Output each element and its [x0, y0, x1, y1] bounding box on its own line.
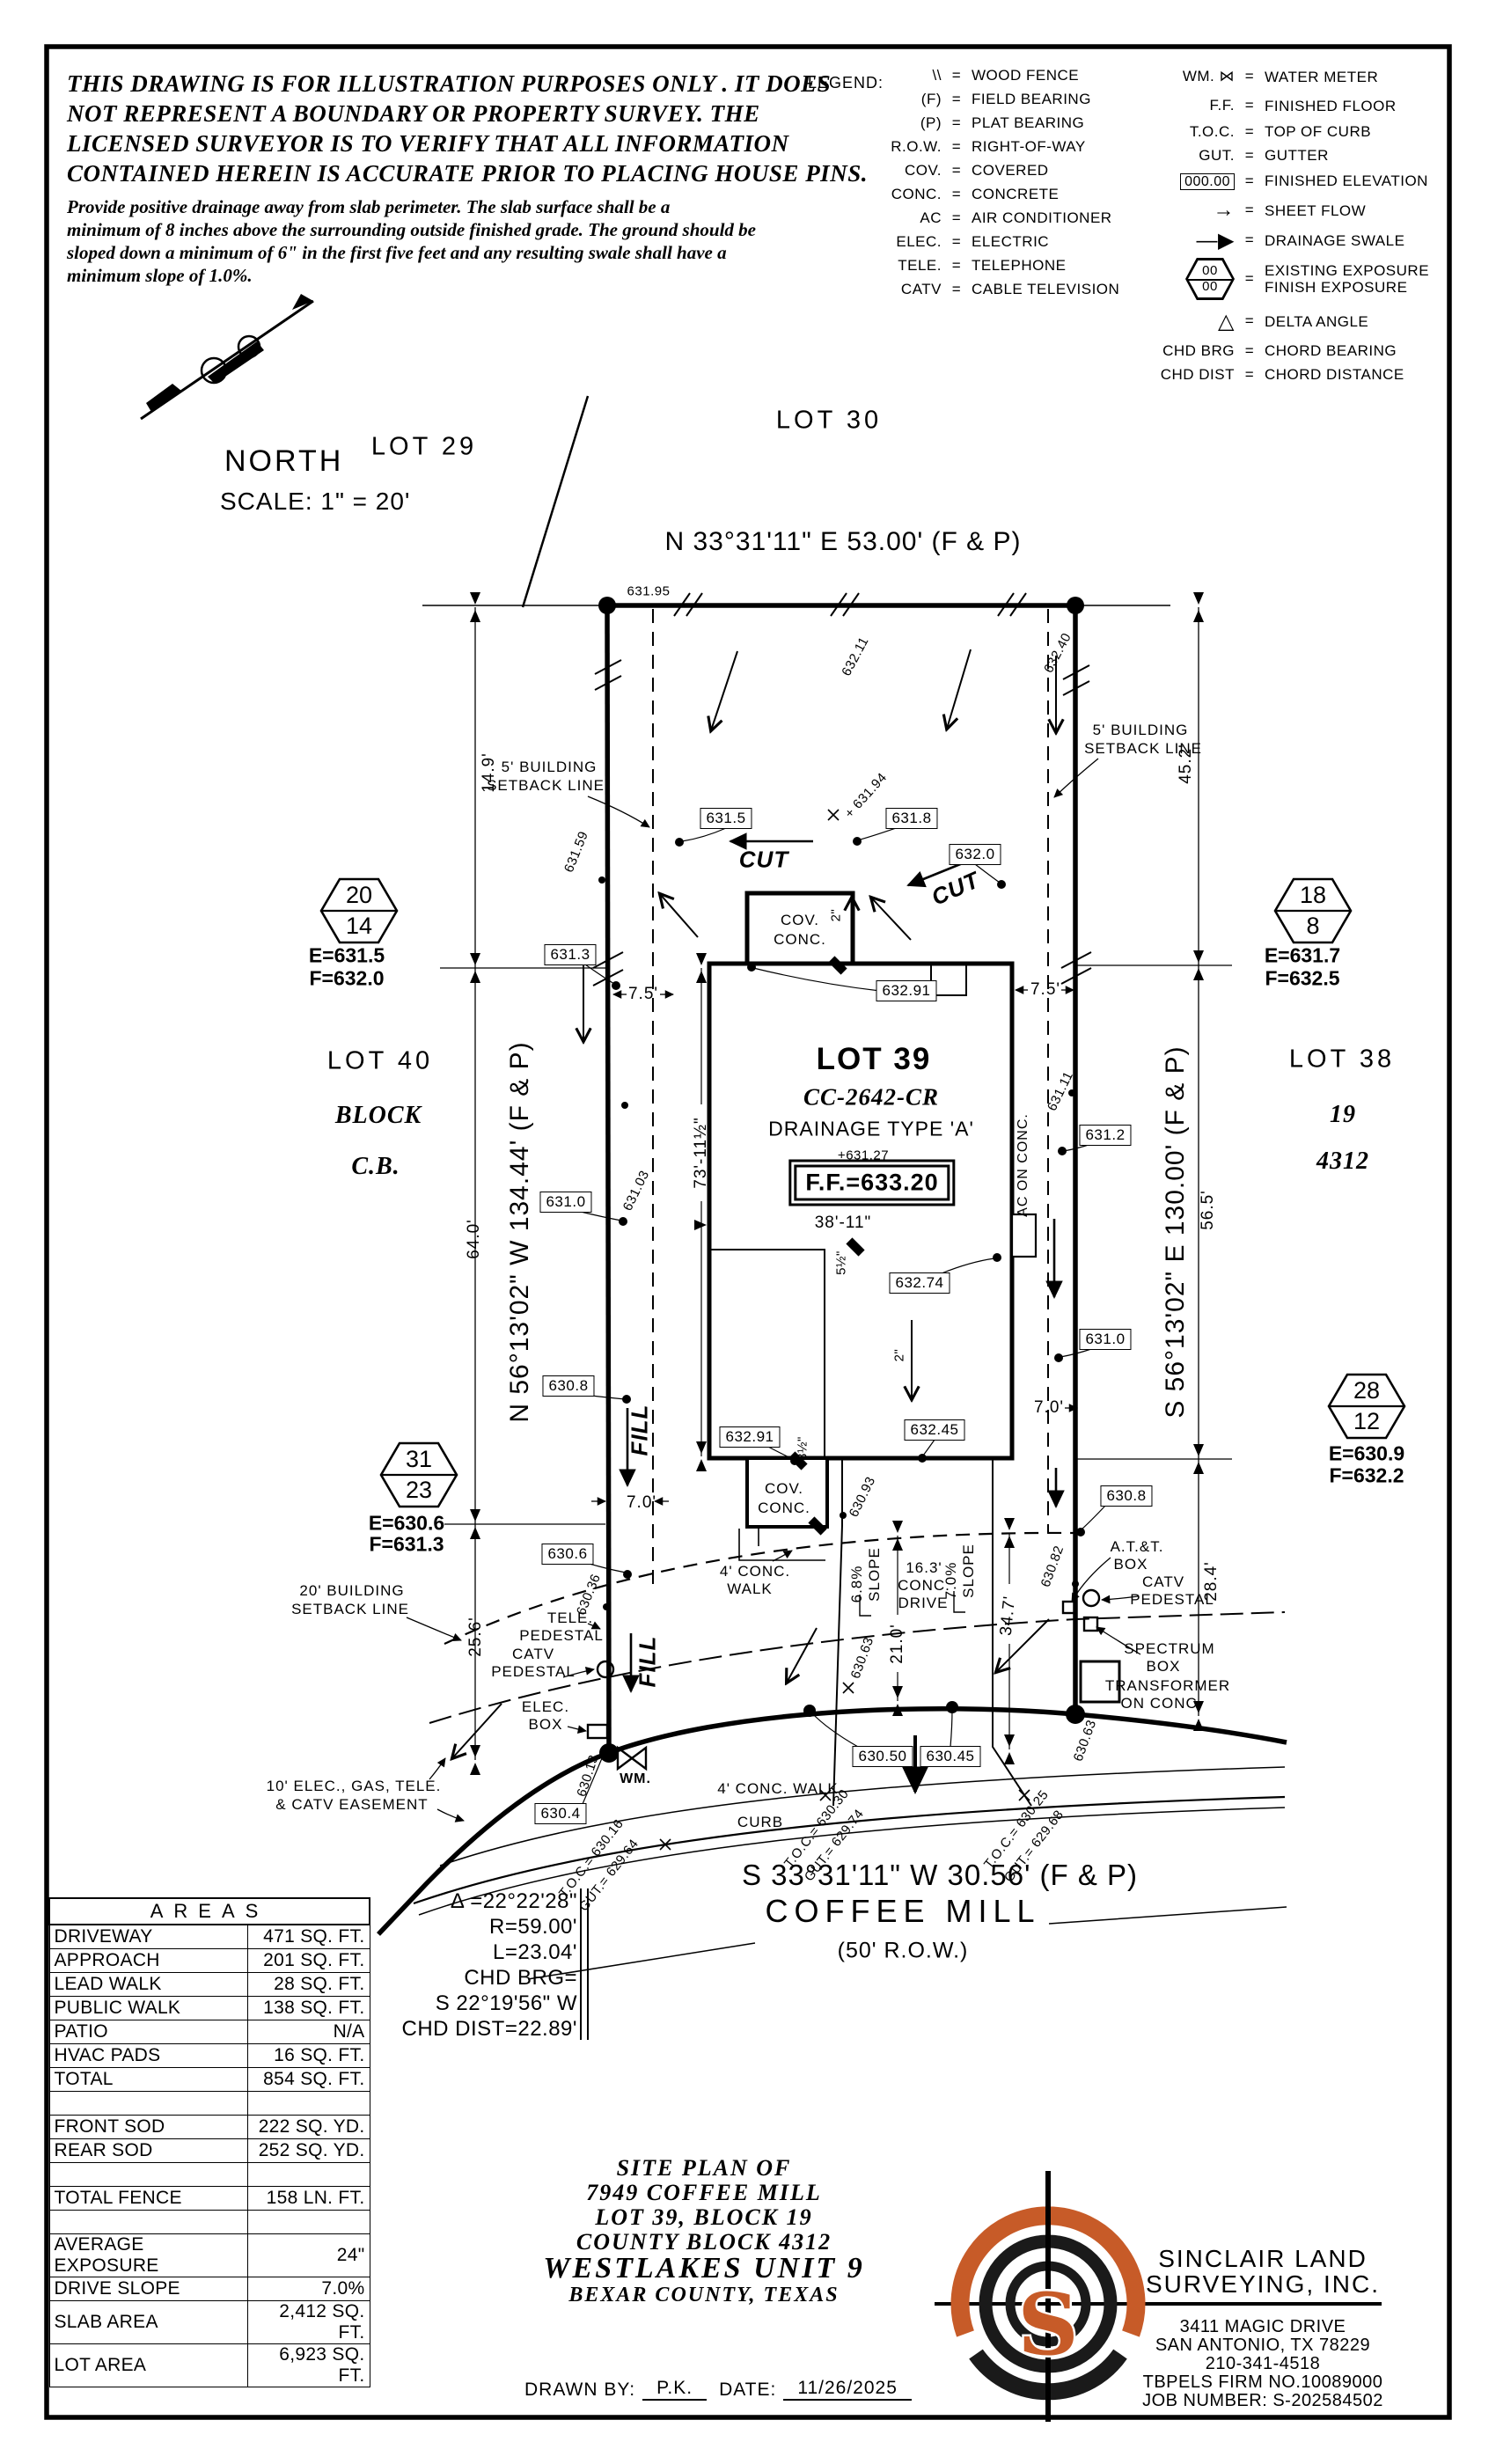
area-value: 158 LN. FT.	[247, 2187, 370, 2211]
legend-symbol: △	[1218, 310, 1235, 334]
plan-label: 19	[1330, 1101, 1356, 1129]
area-label	[49, 2163, 247, 2187]
area-label: LEAD WALK	[49, 1973, 247, 1997]
plan-label: F=632.0	[309, 967, 384, 991]
elevation-box: 630.8	[542, 1375, 594, 1397]
legend-label: DRAINAGE SWALE	[1265, 232, 1404, 249]
area-value: 252 SQ. YD.	[247, 2139, 370, 2163]
plan-label: E=631.5	[309, 944, 385, 968]
legend-label: TELEPHONE	[972, 257, 1066, 274]
plan-label: 7.0'	[627, 1493, 656, 1513]
water-meter-icon	[618, 1748, 646, 1769]
legend-item: △ △ = DELTA ANGLE	[1140, 304, 1474, 339]
area-value: 222 SQ. YD.	[247, 2116, 370, 2139]
area-value: N/A	[247, 2020, 370, 2044]
plan-label: 7.0%	[942, 1562, 960, 1600]
legend-symbol: COV.	[845, 162, 942, 180]
areas-table-row	[49, 2092, 370, 2116]
plan-label: LOT 29	[371, 433, 477, 462]
area-label: HVAC PADS	[49, 2044, 247, 2068]
curve-data-line: R=59.00'	[359, 1914, 577, 1940]
svg-text:18: 18	[1300, 882, 1326, 908]
plan-label: ON CONC.	[1121, 1695, 1203, 1712]
area-label: PATIO	[49, 2020, 247, 2044]
plan-label: FILL	[627, 1404, 654, 1456]
legend-label: RIGHT-OF-WAY	[972, 138, 1086, 155]
drainage-note-line: sloped down a minimum of 6" in the first…	[67, 241, 806, 264]
area-label: TOTAL FENCE	[49, 2187, 247, 2211]
plan-label: LOT 38	[1289, 1045, 1395, 1074]
area-value: 2,412 SQ. FT.	[247, 2301, 370, 2344]
plan-label: SETBACK LINE	[487, 777, 605, 795]
area-label: AVERAGE EXPOSURE	[49, 2234, 247, 2277]
legend-symbol: WM. ⋈	[1183, 68, 1235, 84]
plan-label: A.T.&T.	[1111, 1538, 1164, 1556]
plan-label: F=632.5	[1265, 967, 1339, 991]
plan-label: 2"	[829, 909, 844, 922]
plan-label: E=630.9	[1329, 1442, 1404, 1466]
area-label: DRIVE SLOPE	[49, 2277, 247, 2301]
legend-label: CHORD DISTANCE	[1265, 366, 1404, 383]
legend-item: AC = AIR CONDITIONER	[845, 206, 1135, 230]
disclaimer: THIS DRAWING IS FOR ILLUSTRATION PURPOSE…	[67, 69, 806, 287]
title-line: SITE PLAN OF	[493, 2156, 915, 2181]
plan-label: 64.0'	[465, 1219, 484, 1259]
plan-label: SLOPE	[960, 1544, 978, 1598]
plan-label: CATV	[1142, 1573, 1184, 1591]
north-arrow-icon	[141, 294, 313, 419]
plan-label: COV.	[765, 1480, 803, 1498]
plan-label: 56.5'	[1199, 1190, 1218, 1230]
plan-label: BLOCK	[335, 1102, 422, 1130]
legend-symbol: ELEC.	[845, 233, 942, 251]
legend-item: COV. = COVERED	[845, 158, 1135, 182]
plan-label: COV.	[781, 912, 819, 929]
area-label: APPROACH	[49, 1949, 247, 1973]
plan-label: 7.5'	[628, 985, 658, 1004]
plan-label: LOT 40	[327, 1047, 433, 1076]
legend-item: TELE. = TELEPHONE	[845, 253, 1135, 277]
plan-label: N 33°31'11" E 53.00' (F & P)	[664, 527, 1021, 557]
lot-boundary-left	[607, 605, 609, 1753]
plan-label: 4312	[1316, 1148, 1369, 1176]
exposure-hexagon: 20 14	[319, 876, 399, 945]
plan-label: 3½"	[796, 1436, 810, 1461]
legend-label: PLAT BEARING	[972, 114, 1084, 131]
survey-sheet: S THIS DRAWING IS FOR ILLUSTRATION PURPO…	[0, 0, 1496, 2464]
title-line: 7949 COFFEE MILL	[493, 2181, 915, 2205]
areas-table-row	[49, 2211, 370, 2234]
legend-symbol: —▶	[1197, 229, 1235, 253]
legend-symbol: (F)	[845, 91, 942, 108]
plan-label: 2"	[892, 1349, 907, 1362]
plan-label: SPECTRUM	[1124, 1640, 1214, 1658]
area-label	[49, 2211, 247, 2234]
areas-table-row: PATIO N/A	[49, 2020, 370, 2044]
area-value: 16 SQ. FT.	[247, 2044, 370, 2068]
legend-label: AIR CONDITIONER	[972, 209, 1112, 226]
legend-item: 00 0000 = EXISTING EXPOSUREFINISH EXPOSU…	[1140, 254, 1474, 304]
plan-label: DRIVE	[898, 1595, 949, 1612]
legend-item: ELEC. = ELECTRIC	[845, 230, 1135, 253]
legend-item: CHD DIST CHD DIST = CHORD DISTANCE	[1140, 363, 1474, 386]
drawn-by-label: DRAWN BY:	[524, 2380, 635, 2401]
plan-label: 5½"	[834, 1250, 849, 1275]
plan-label: E=630.6	[369, 1512, 444, 1536]
company-firm-no: TBPELS FIRM NO.10089000	[1126, 2373, 1399, 2392]
curve-data-line: Δ =22°22'28"	[359, 1888, 577, 1914]
logo-letter: S	[1017, 2275, 1078, 2374]
drawn-by-row: DRAWN BY: P.K. DATE: 11/26/2025	[524, 2378, 924, 2401]
elevation-box: 630.6	[541, 1544, 593, 1565]
company-name-line2: SURVEYING, INC.	[1126, 2271, 1399, 2297]
legend-item: WM. ⋈ WM. ⋈ = WATER METER	[1140, 62, 1474, 92]
date-value: 11/26/2025	[783, 2378, 912, 2401]
plan-label: CONC.	[774, 931, 826, 949]
legend-symbol: (P)	[845, 114, 942, 132]
plan-label: & CATV EASEMENT	[275, 1796, 428, 1814]
legend-symbol: →	[1214, 198, 1236, 222]
title-block: SITE PLAN OF7949 COFFEE MILLLOT 39, BLOC…	[493, 2156, 915, 2307]
legend-item: GUT. GUT. = GUTTER	[1140, 143, 1474, 167]
disclaimer-line: THIS DRAWING IS FOR ILLUSTRATION PURPOSE…	[67, 69, 806, 99]
plan-label: 20' BUILDING	[299, 1582, 404, 1600]
areas-table-row: REAR SOD 252 SQ. YD.	[49, 2139, 370, 2163]
legend-symbol: \\	[845, 67, 942, 84]
legend-label: FINISHED FLOOR	[1265, 98, 1397, 114]
legend-label: CABLE TELEVISION	[972, 281, 1119, 297]
area-label: PUBLIC WALK	[49, 1997, 247, 2020]
area-label: FRONT SOD	[49, 2116, 247, 2139]
plan-label: 16.3'	[906, 1559, 942, 1577]
areas-table-row: AVERAGE EXPOSURE 24"	[49, 2234, 370, 2277]
area-value: 6,923 SQ. FT.	[247, 2344, 370, 2387]
plan-label: BOX	[529, 1716, 563, 1734]
legend-label: FINISHED ELEVATION	[1265, 172, 1428, 189]
svg-text:31: 31	[406, 1446, 432, 1472]
plan-label: CUT	[739, 847, 788, 874]
svg-text:14: 14	[346, 913, 372, 939]
utility-symbols	[588, 1590, 1119, 1769]
plan-label: 5' BUILDING	[502, 759, 598, 776]
legend-symbol: CHD BRG	[1162, 342, 1235, 359]
legend-item: → → = SHEET FLOW	[1140, 194, 1474, 226]
areas-table-row: TOTAL FENCE 158 LN. FT.	[49, 2187, 370, 2211]
elec-box-icon	[588, 1725, 607, 1738]
legend-symbol: CHD DIST	[1161, 366, 1235, 383]
legend-label: EXISTING EXPOSUREFINISH EXPOSURE	[1265, 262, 1429, 296]
legend-item: CONC. = CONCRETE	[845, 182, 1135, 206]
svg-text:20: 20	[346, 882, 372, 908]
legend-label: ELECTRIC	[972, 233, 1049, 250]
title-line: WESTLAKES UNIT 9	[493, 2255, 915, 2283]
legend-item: (F) = FIELD BEARING	[845, 87, 1135, 111]
exposure-hexagon: 31 23	[379, 1441, 458, 1509]
plan-label: 4' CONC.	[720, 1563, 790, 1580]
plan-label: TELE.	[547, 1610, 593, 1627]
plan-label: 7.5'	[1030, 980, 1060, 1000]
legend-symbol: GUT.	[1199, 147, 1235, 164]
areas-table-row: LEAD WALK 28 SQ. FT.	[49, 1973, 370, 1997]
legend-left-column: \\ = WOOD FENCE (F) = FIELD BEARING (P) …	[845, 63, 1135, 301]
area-value	[247, 2092, 370, 2116]
plan-label: E=631.7	[1265, 944, 1340, 968]
legend-label: DELTA ANGLE	[1265, 313, 1368, 330]
area-label: LOT AREA	[49, 2344, 247, 2387]
elevation-box: 632.74	[890, 1272, 950, 1294]
plan-label: 10' ELEC., GAS, TELE.	[267, 1778, 442, 1795]
area-value: 7.0%	[247, 2277, 370, 2301]
legend-label: SHEET FLOW	[1265, 202, 1366, 219]
plan-label: SETBACK LINE	[1084, 740, 1202, 758]
plan-label: S 56°13'02" E 130.00' (F & P)	[1161, 1045, 1191, 1418]
date-label: DATE:	[719, 2380, 776, 2401]
legend-item: (P) = PLAT BEARING	[845, 111, 1135, 135]
plan-label: LOT 39	[817, 1042, 932, 1077]
plan-label: +631.27	[838, 1148, 889, 1163]
plan-label: ELEC.	[522, 1698, 569, 1716]
title-line: LOT 39, BLOCK 19	[493, 2205, 915, 2230]
plan-label: WM.	[620, 1771, 651, 1787]
area-value: 24"	[247, 2234, 370, 2277]
plan-label: CONC.	[758, 1500, 810, 1517]
plan-label: SETBACK LINE	[291, 1601, 409, 1618]
legend-label: COVERED	[972, 162, 1049, 179]
plan-label: WALK	[727, 1580, 773, 1598]
legend-symbol: CATV	[845, 281, 942, 298]
exposure-hexagon: 18 8	[1273, 876, 1353, 945]
area-value: 854 SQ. FT.	[247, 2068, 370, 2092]
area-label	[49, 2092, 247, 2116]
lot29-30-divider	[523, 396, 588, 607]
exposure-hexagon-icon: 0000	[1185, 258, 1235, 300]
curve-data: Δ =22°22'28"R=59.00'L=23.04'CHD BRG=S 22…	[359, 1888, 577, 2042]
areas-table-row: TOTAL 854 SQ. FT.	[49, 2068, 370, 2092]
company-job-no: JOB NUMBER: S-202584502	[1126, 2392, 1399, 2410]
legend-symbol: CONC.	[845, 186, 942, 203]
elevation-box: 632.0	[949, 844, 1001, 865]
plan-label: 5' BUILDING	[1093, 722, 1189, 739]
company-address1: 3411 MAGIC DRIVE	[1126, 2318, 1399, 2336]
driveway-left-edge	[833, 1458, 842, 1806]
curve-data-line: S 22°19'56" W	[359, 1991, 577, 2016]
ac-pad	[1012, 1214, 1036, 1257]
areas-table-row: PUBLIC WALK 138 SQ. FT.	[49, 1997, 370, 2020]
plan-label: CURB	[737, 1814, 783, 1831]
elevation-box: 630.8	[1100, 1485, 1152, 1507]
plan-label: FILL	[634, 1636, 662, 1688]
plan-label: 25.6'	[466, 1617, 486, 1657]
plan-label: F=632.2	[1329, 1464, 1404, 1488]
area-value: 201 SQ. FT.	[247, 1949, 370, 1973]
areas-table-row: FRONT SOD 222 SQ. YD.	[49, 2116, 370, 2139]
drainage-note-line: Provide positive drainage away from slab…	[67, 195, 806, 218]
legend-item: T.O.C. T.O.C. = TOP OF CURB	[1140, 120, 1474, 143]
areas-table-row: HVAC PADS 16 SQ. FT.	[49, 2044, 370, 2068]
plan-label: PEDESTAL	[491, 1663, 576, 1681]
legend-label: TOP OF CURB	[1265, 123, 1371, 140]
plan-label: F=631.3	[369, 1533, 444, 1557]
curve-data-line: CHD DIST=22.89'	[359, 2016, 577, 2042]
plan-label: 6.8%	[848, 1566, 866, 1603]
legend-label: GUTTER	[1265, 147, 1329, 164]
areas-table-row: LOT AREA 6,923 SQ. FT.	[49, 2344, 370, 2387]
plan-label: 631.95	[627, 584, 671, 599]
area-label: DRIVEWAY	[49, 1925, 247, 1949]
area-label: TOTAL	[49, 2068, 247, 2092]
plan-label: PEDESTAL	[519, 1627, 604, 1645]
curve-data-line: L=23.04'	[359, 1940, 577, 1965]
elevation-box: 632.91	[720, 1426, 781, 1448]
title-line: BEXAR COUNTY, TEXAS	[493, 2283, 915, 2307]
plan-label: C.B.	[351, 1153, 400, 1181]
elevation-box: 632.45	[905, 1419, 965, 1441]
plan-label: 7.0'	[1034, 1398, 1064, 1418]
plan-label: (50' R.O.W.)	[838, 1939, 969, 1964]
elevation-box: 631.2	[1079, 1125, 1131, 1146]
areas-table-row: SLAB AREA 2,412 SQ. FT.	[49, 2301, 370, 2344]
legend-item: R.O.W. = RIGHT-OF-WAY	[845, 135, 1135, 158]
title-line: COUNTY BLOCK 4312	[493, 2230, 915, 2255]
legend-label: CONCRETE	[972, 186, 1059, 202]
plan-label: BOX	[1114, 1556, 1148, 1573]
plan-label: TRANSFORMER	[1105, 1677, 1230, 1695]
legend-label: WOOD FENCE	[972, 67, 1079, 84]
disclaimer-line: LICENSED SURVEYOR IS TO VERIFY THAT ALL …	[67, 128, 806, 158]
plan-label: BOX	[1147, 1658, 1181, 1676]
company-name-line1: SINCLAIR LAND	[1126, 2246, 1399, 2271]
house-outline	[709, 964, 1012, 1458]
legend-item: F.F. F.F. = FINISHED FLOOR	[1140, 92, 1474, 120]
drainage-note-line: minimum slope of 1.0%.	[67, 264, 806, 287]
plan-label: COFFEE MILL	[765, 1893, 1040, 1930]
legend-right-column: WM. ⋈ WM. ⋈ = WATER METER F.F. F.F. = FI…	[1140, 62, 1474, 386]
areas-table-title: AREAS	[49, 1898, 370, 1925]
legend-symbol: 000.00	[1180, 173, 1235, 190]
plan-label: N 56°13'02" W 134.44' (F & P)	[505, 1041, 535, 1422]
elevation-box: 630.45	[920, 1746, 981, 1767]
elevation-box: 630.50	[853, 1746, 913, 1767]
curve-data-line: CHD BRG=	[359, 1965, 577, 1991]
area-label: REAR SOD	[49, 2139, 247, 2163]
plan-label: 73'-11½"	[692, 1117, 711, 1188]
svg-text:23: 23	[406, 1477, 432, 1503]
disclaimer-line: NOT REPRESENT A BOUNDARY OR PROPERTY SUR…	[67, 99, 806, 128]
plan-label: CC-2642-CR	[803, 1084, 939, 1111]
exposure-hexagon: 28 12	[1327, 1372, 1406, 1441]
plan-label: DRAINAGE TYPE 'A'	[768, 1118, 974, 1141]
drainage-note-line: minimum of 8 inches above the surroundin…	[67, 218, 806, 241]
plan-label: SLOPE	[866, 1547, 884, 1602]
elevation-box: 631.3	[544, 944, 596, 965]
scale-label: SCALE: 1" = 20'	[220, 488, 410, 516]
legend-item: \\ = WOOD FENCE	[845, 63, 1135, 87]
plan-label: 28.4'	[1202, 1561, 1221, 1602]
catv-pedestal-icon-right	[1083, 1590, 1099, 1606]
elevation-box: 630.4	[534, 1803, 586, 1824]
area-label: SLAB AREA	[49, 2301, 247, 2344]
area-value: 138 SQ. FT.	[247, 1997, 370, 2020]
elevation-box: 631.5	[700, 808, 752, 829]
plan-label: AC ON CONC.	[1016, 1113, 1031, 1217]
elevation-box: 631.8	[885, 808, 937, 829]
legend-symbol: T.O.C.	[1190, 123, 1235, 140]
svg-text:8: 8	[1306, 913, 1319, 939]
svg-text:12: 12	[1353, 1408, 1380, 1434]
areas-table-row: DRIVE SLOPE 7.0%	[49, 2277, 370, 2301]
disclaimer-line: CONTAINED HEREIN IS ACCURATE PRIOR TO PL…	[67, 158, 806, 188]
company-address2: SAN ANTONIO, TX 78229	[1126, 2336, 1399, 2355]
finished-floor-box: F.F.=633.20	[794, 1165, 950, 1201]
elevation-box: 631.0	[539, 1192, 591, 1213]
area-value	[247, 2163, 370, 2187]
plan-label: S 33°31'11" W 30.56' (F & P)	[742, 1859, 1138, 1892]
legend-item: 000.00 000.00 = FINISHED ELEVATION	[1140, 167, 1474, 194]
legend-label: WATER METER	[1265, 69, 1378, 85]
company-block: SINCLAIR LAND SURVEYING, INC. 3411 MAGIC…	[1126, 2246, 1399, 2410]
area-value: 471 SQ. FT.	[247, 1925, 370, 1949]
plan-label: LOT 30	[776, 407, 882, 436]
legend-symbol: R.O.W.	[845, 138, 942, 156]
plan-label: 4' CONC. WALK	[717, 1780, 838, 1798]
legend-item: CATV = CABLE TELEVISION	[845, 277, 1135, 301]
elevation-box: 632.91	[876, 980, 937, 1001]
areas-table: AREAS DRIVEWAY 471 SQ. FT. APPROACH 201 …	[48, 1897, 370, 2387]
svg-text:28: 28	[1353, 1377, 1380, 1404]
drawn-by-value: P.K.	[642, 2378, 707, 2401]
areas-table-row	[49, 2163, 370, 2187]
company-phone: 210-341-4518	[1126, 2355, 1399, 2373]
plan-label: CATV	[512, 1646, 554, 1663]
legend-label: FIELD BEARING	[972, 91, 1091, 107]
legend-item: CHD BRG CHD BRG = CHORD BEARING	[1140, 339, 1474, 363]
legend-item: —▶ —▶ = DRAINAGE SWALE	[1140, 226, 1474, 254]
north-label: NORTH	[224, 444, 343, 479]
legend-label: CHORD BEARING	[1265, 342, 1397, 359]
elevation-box: 631.0	[1079, 1329, 1131, 1350]
plan-label: 38'-11"	[815, 1214, 872, 1233]
areas-table-row: APPROACH 201 SQ. FT.	[49, 1949, 370, 1973]
areas-table-row: DRIVEWAY 471 SQ. FT.	[49, 1925, 370, 1949]
area-value	[247, 2211, 370, 2234]
legend-symbol: AC	[845, 209, 942, 227]
legend-symbol: TELE.	[845, 257, 942, 275]
legend-symbol: F.F.	[1210, 97, 1235, 114]
plan-label: 21.0'	[888, 1624, 907, 1664]
area-value: 28 SQ. FT.	[247, 1973, 370, 1997]
